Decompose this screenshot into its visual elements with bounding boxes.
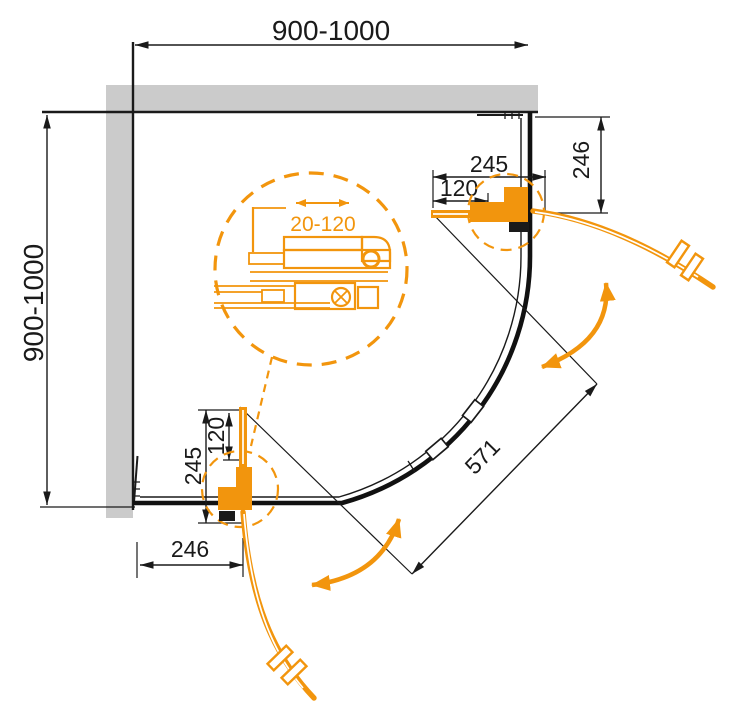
glass-clamp-tab-2 xyxy=(426,438,448,459)
pivot-arm-bottom xyxy=(236,467,252,488)
walls xyxy=(42,42,538,518)
wall-profile-left-line xyxy=(134,456,138,502)
dim-line-opening-571 xyxy=(412,384,597,574)
profile-slider-block xyxy=(262,290,284,302)
dim-label-door-top-120: 120 xyxy=(440,175,478,201)
pivot-arm-top xyxy=(470,202,506,222)
door-assembly-top xyxy=(431,174,713,367)
swing-arrow-top xyxy=(542,283,606,367)
diagram-canvas: 900-1000 900-1000 245 120 246 245 120 24… xyxy=(0,0,735,720)
profile-detail: 20-120 xyxy=(214,173,407,446)
dim-label-door-top-245: 245 xyxy=(470,151,508,177)
detail-leader-line xyxy=(251,357,272,446)
dim-label-overall-depth: 900-1000 xyxy=(18,244,49,362)
swing-arrow-bottom xyxy=(312,519,399,585)
profile-channel-lines xyxy=(250,272,388,281)
dim-label-overall-width: 900-1000 xyxy=(272,15,390,46)
door-handle-top-bar1 xyxy=(667,241,689,268)
dim-label-door-bottom-120: 120 xyxy=(203,417,229,455)
profile-top-bar xyxy=(284,237,362,250)
dim-label-opening-571: 571 xyxy=(460,434,505,480)
profile-end-block xyxy=(358,287,378,308)
pivot-clamp-bottom xyxy=(219,511,235,521)
profile-mechanism xyxy=(214,237,390,309)
profile-screw xyxy=(363,251,379,267)
pivot-hinge-bottom xyxy=(218,487,252,510)
pivot-clamp-top xyxy=(509,222,529,232)
dim-label-door-bottom-246: 246 xyxy=(171,536,209,562)
profile-wall-flange xyxy=(249,253,284,264)
glass-clamp-tab-1 xyxy=(463,400,484,423)
door-assembly-bottom xyxy=(202,407,399,698)
dim-label-door-top-246: 246 xyxy=(568,141,594,179)
profile-phillips-cross xyxy=(335,291,347,303)
wall-left xyxy=(106,85,133,518)
shower-enclosure-diagram: 900-1000 900-1000 245 120 246 245 120 24… xyxy=(0,0,735,720)
wall-top xyxy=(106,85,538,112)
dim-label-profile-adjust: 20-120 xyxy=(290,213,355,236)
dimension-overall-width: 900-1000 xyxy=(135,15,528,46)
pivot-hinge-top xyxy=(504,187,528,222)
